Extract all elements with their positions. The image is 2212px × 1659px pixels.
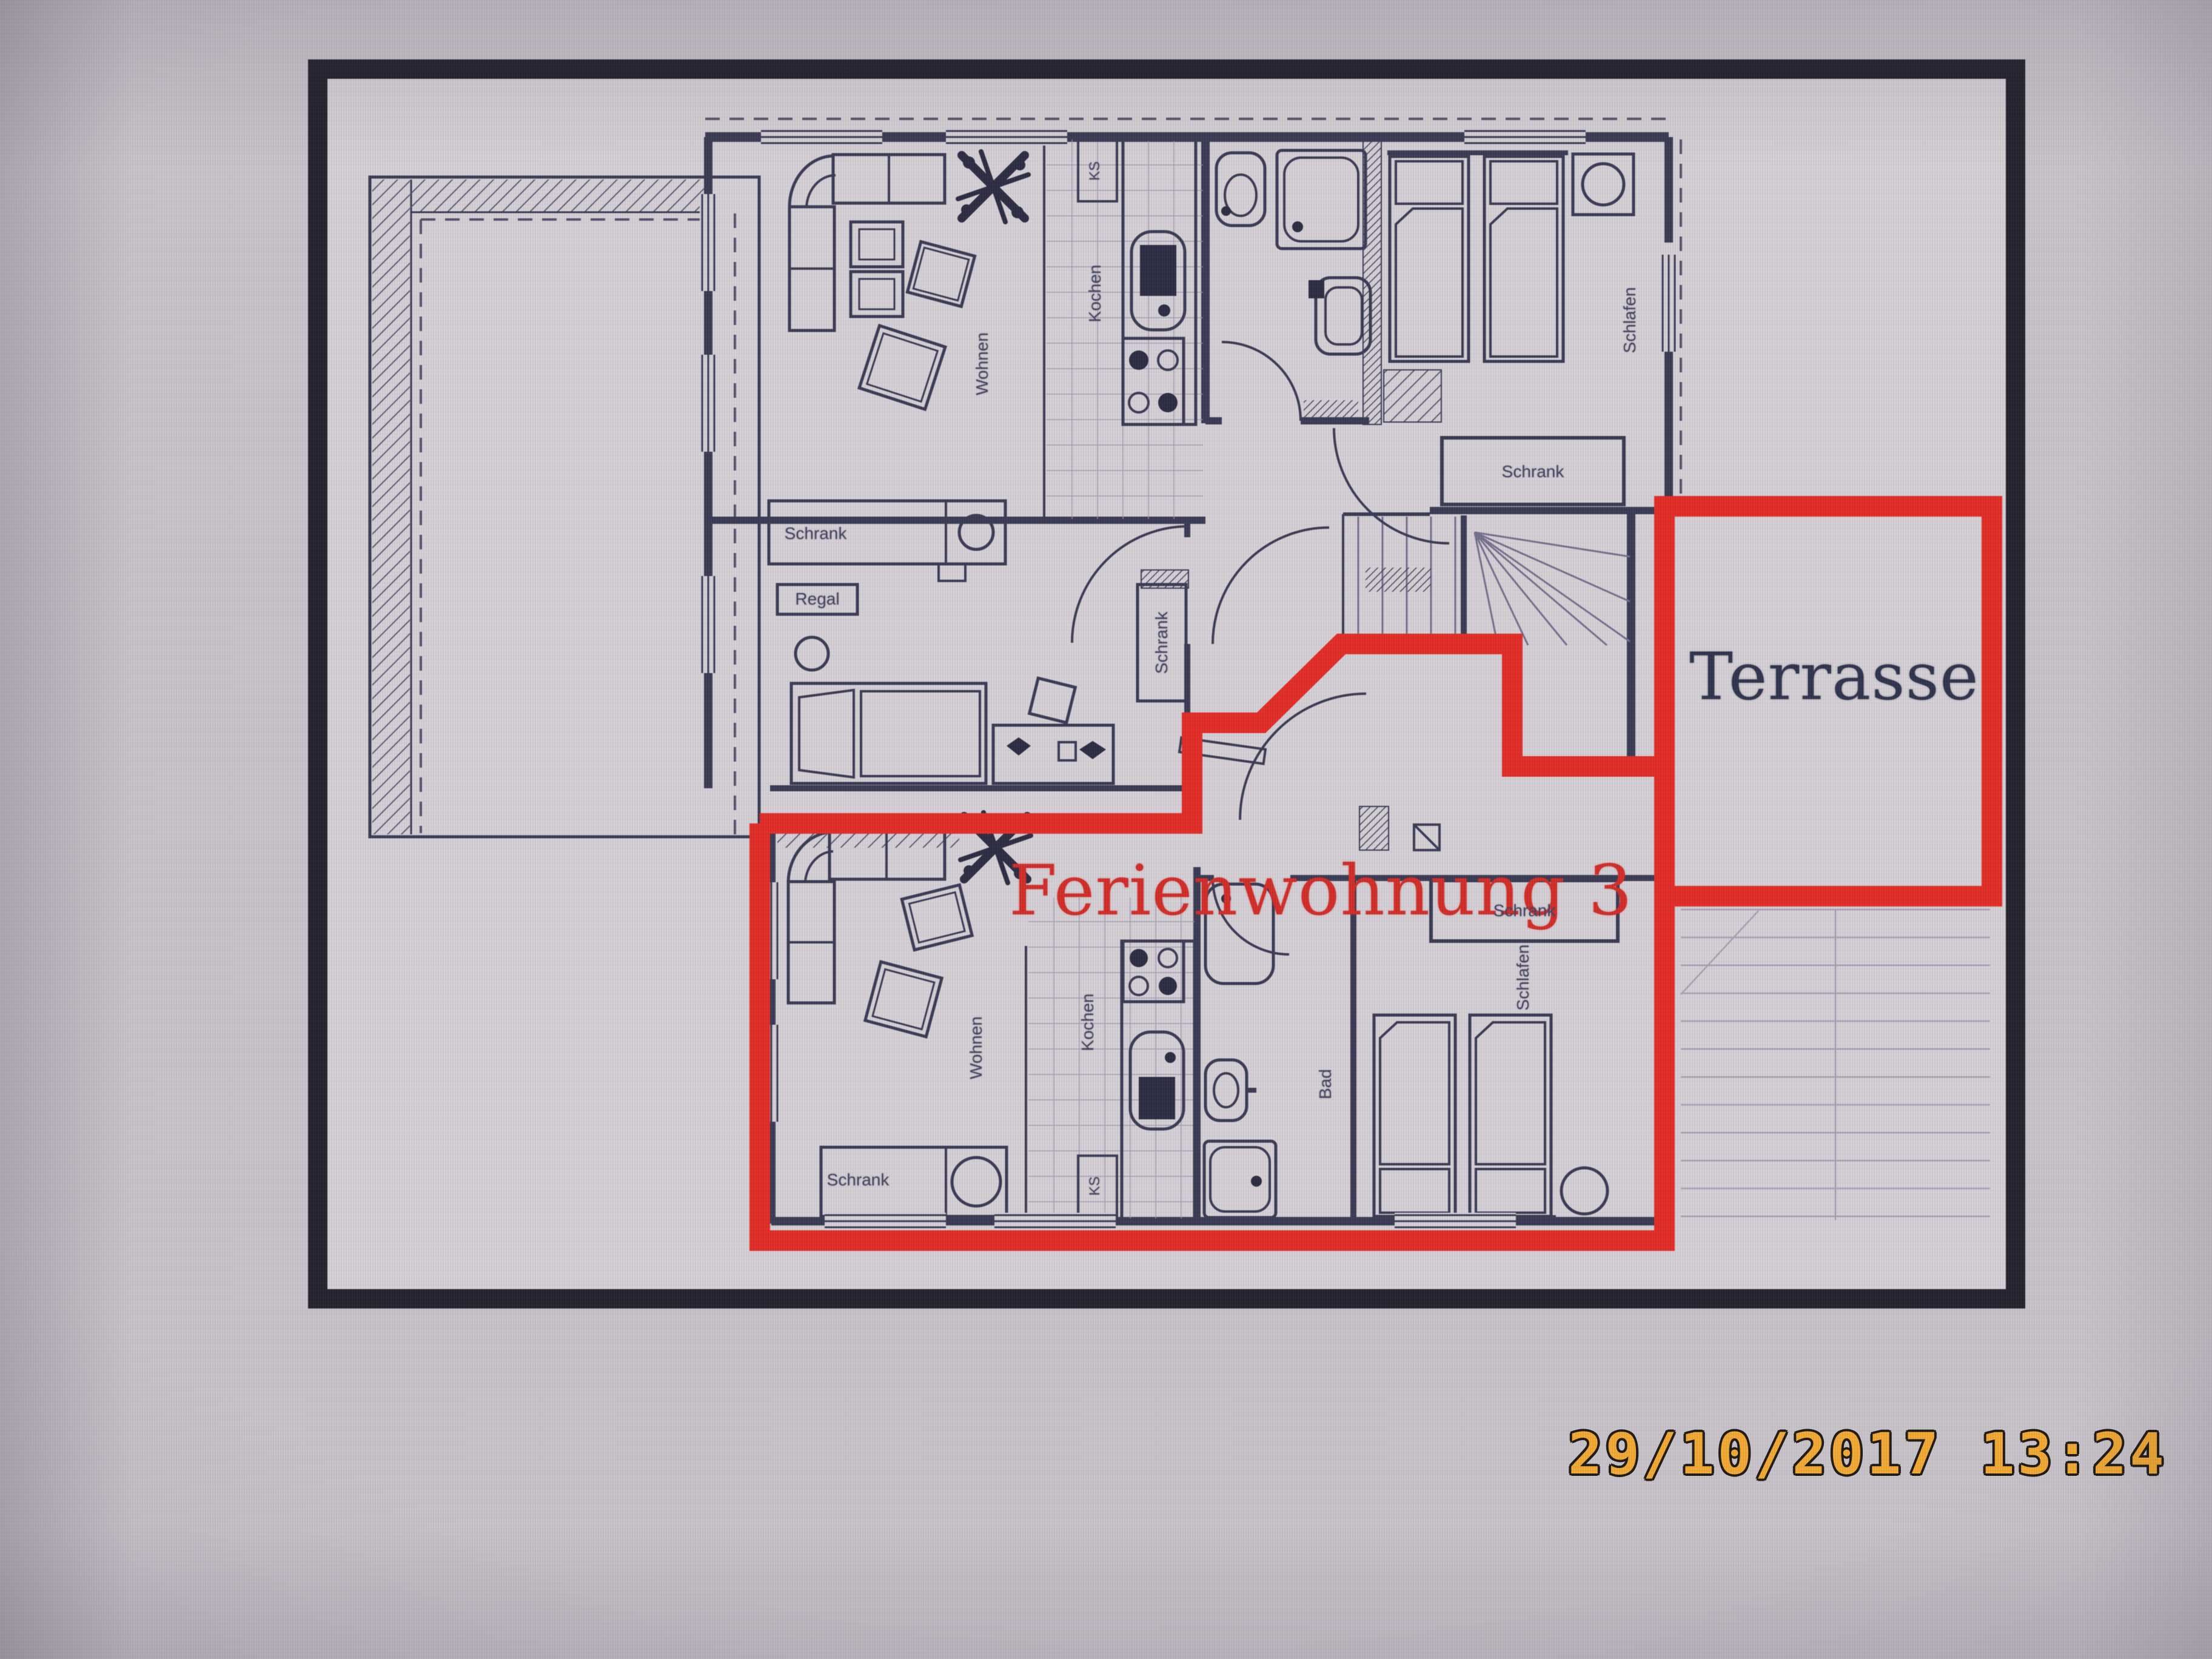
small-room-shelf-label: Regal <box>795 589 839 609</box>
apartment3-living-label: Wohnen <box>967 1016 986 1079</box>
timestamp-date: 29/10/2017 <box>1568 1421 1942 1487</box>
upper-living-label: Wohnen <box>973 332 992 395</box>
apartment3-sideboard-label: Schrank <box>827 1170 890 1190</box>
upper-bedroom-wardrobe-label: Schrank <box>1502 462 1564 481</box>
small-room-wardrobe-label: Schrank <box>785 524 847 543</box>
screen-photo: Ferienwohnung 3 Terrasse Wohnen Kochen K… <box>0 0 2212 1659</box>
upper-bedroom-label: Schlafen <box>1620 287 1640 354</box>
small-room-tall-wardrobe-label: Schrank <box>1152 612 1171 674</box>
terrace-label: Terrasse <box>1689 639 1979 715</box>
apartment3-bath-label: Bad <box>1316 1069 1335 1099</box>
apartment3-fridge-label: KS <box>1087 1176 1104 1196</box>
timestamp-time: 13:24 <box>1980 1421 2167 1487</box>
apartment3-kitchen-label: Kochen <box>1078 994 1098 1051</box>
upper-fridge-label: KS <box>1087 161 1104 181</box>
apartment3-bedroom-label: Schlafen <box>1513 945 1533 1011</box>
upper-kitchen-label: Kochen <box>1085 265 1105 323</box>
plan-labels: Ferienwohnung 3 Terrasse Wohnen Kochen K… <box>0 0 2212 1659</box>
camera-timestamp: 29/10/2017 13:24 <box>1568 1421 2167 1487</box>
apartment3-bedroom-wardrobe-label: Schrank <box>1493 901 1556 920</box>
